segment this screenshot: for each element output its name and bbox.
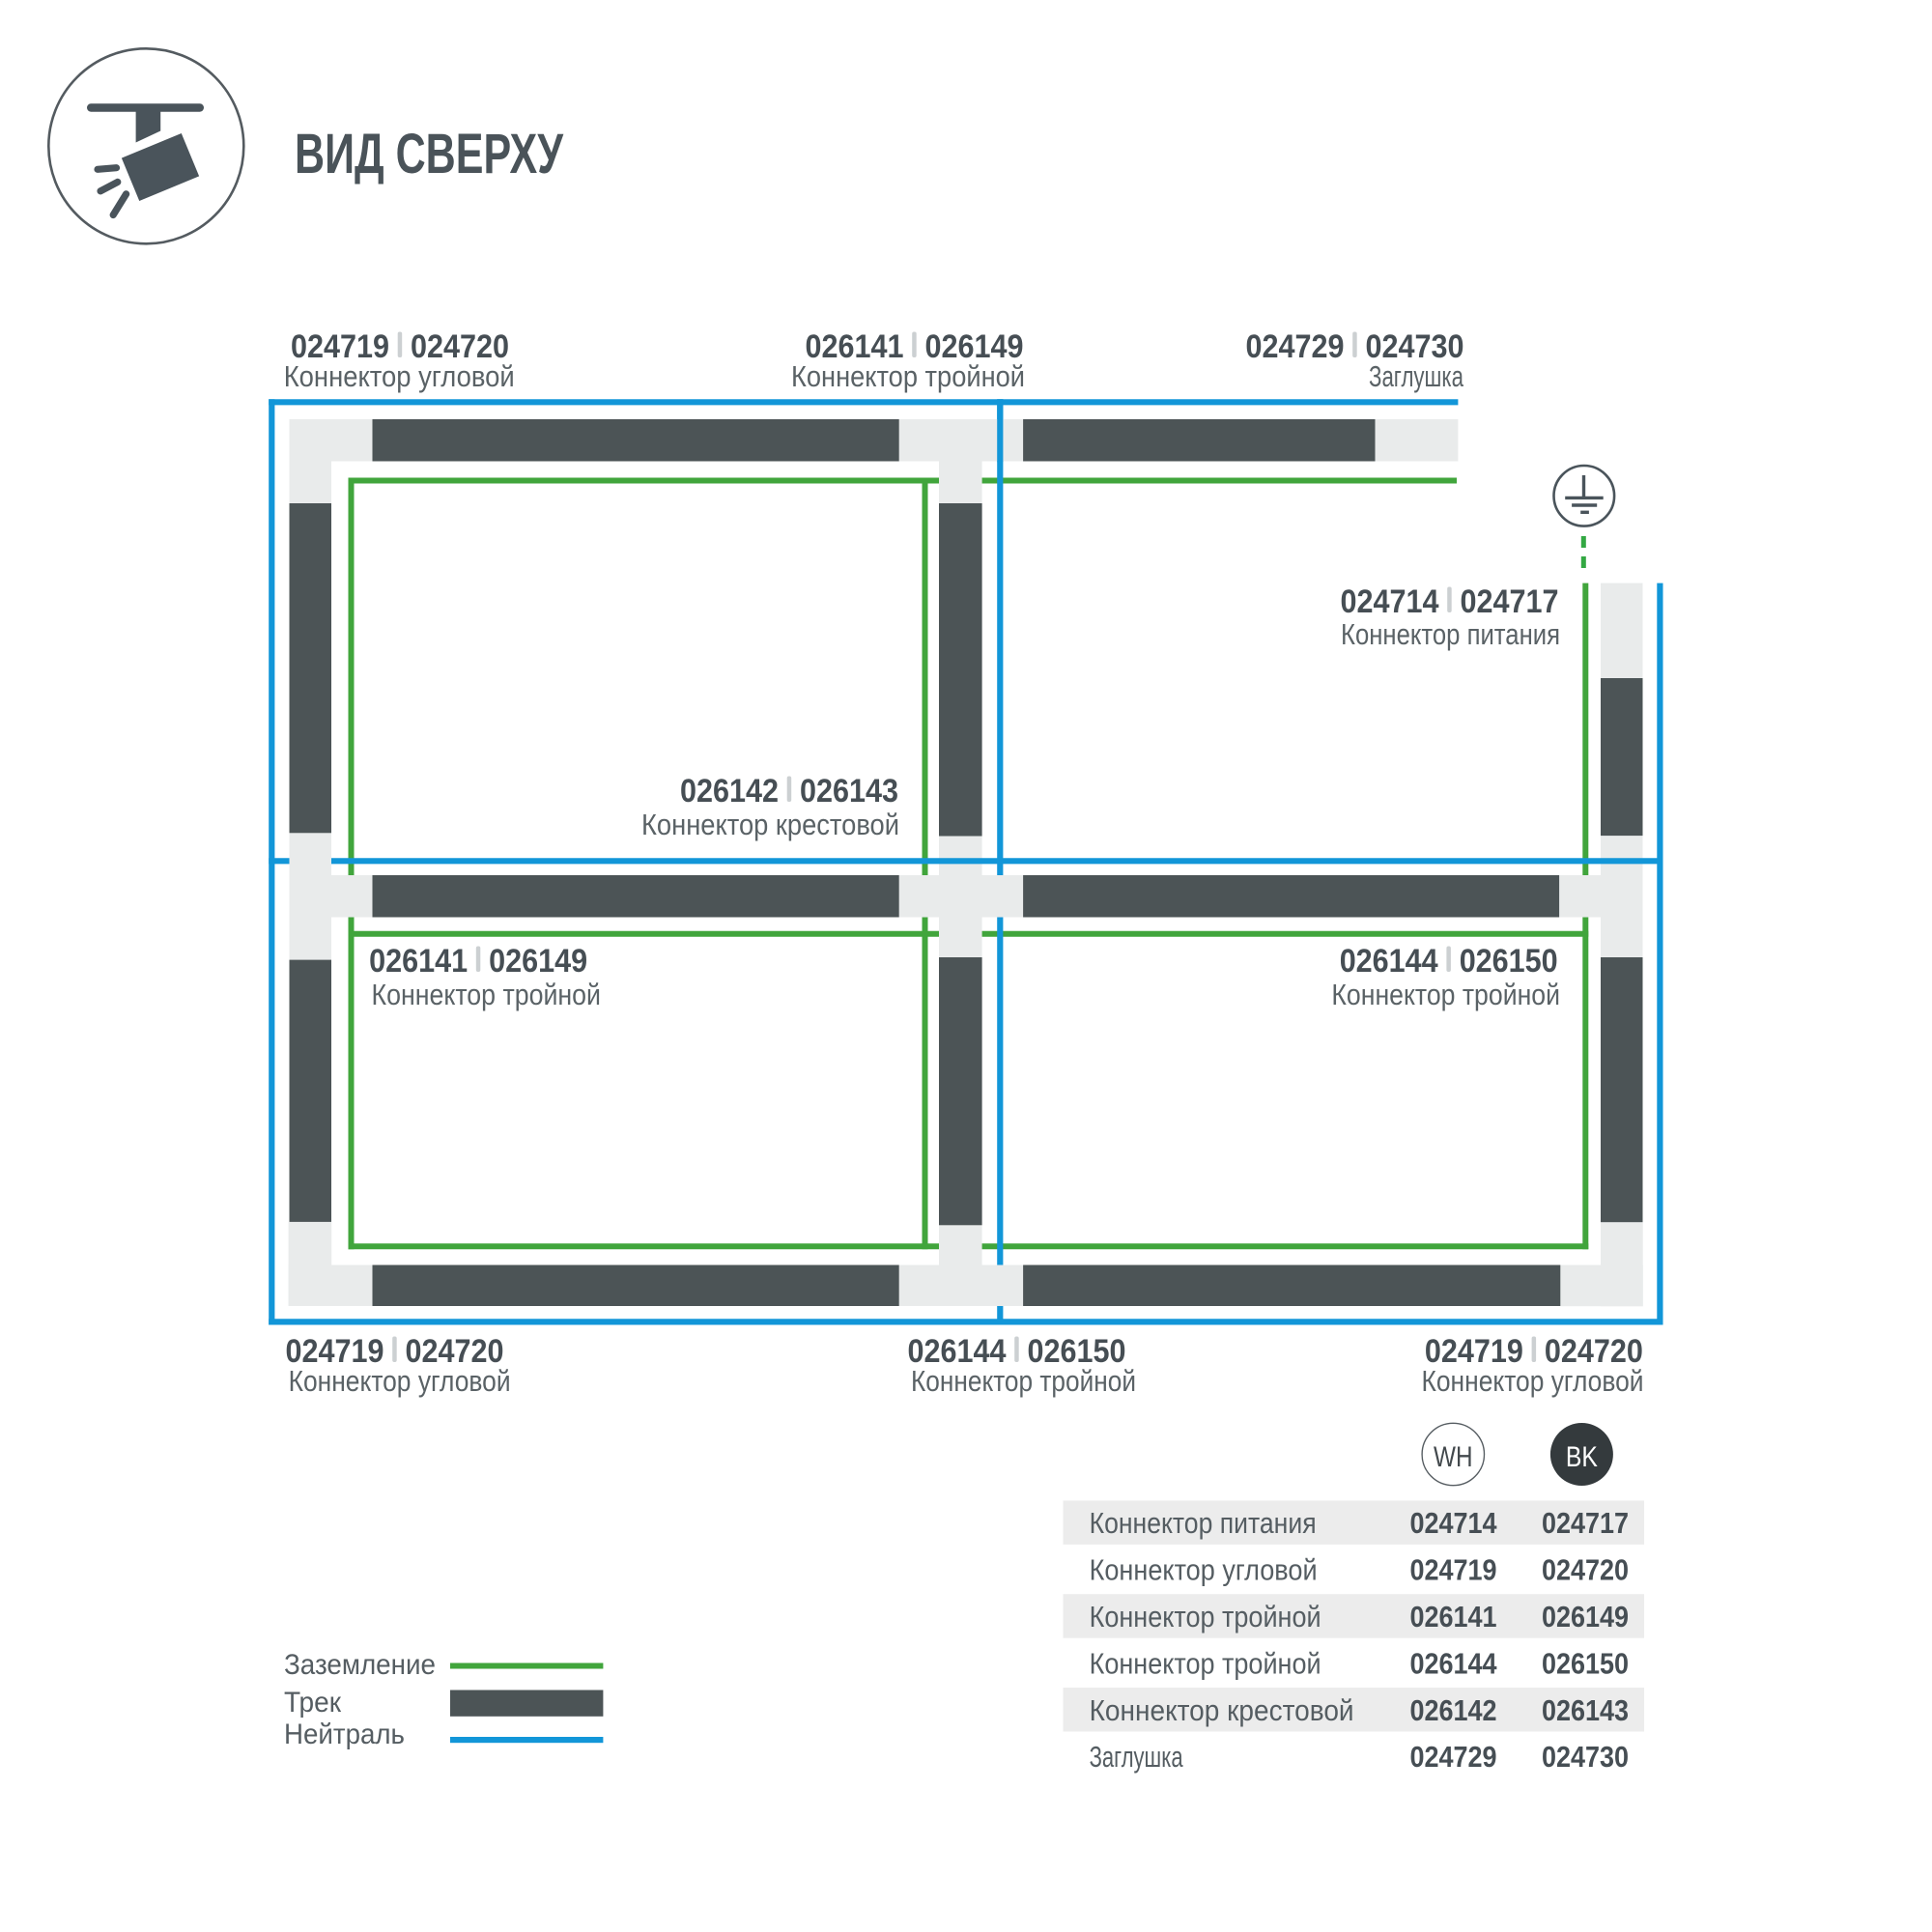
svg-text:Коннектор тройной: Коннектор тройной [372, 978, 602, 1011]
svg-text:Заглушка: Заглушка [1090, 1740, 1184, 1774]
svg-text:026149: 026149 [1542, 1600, 1629, 1634]
svg-text:026141: 026141 [1410, 1600, 1497, 1634]
svg-text:024717: 024717 [1461, 583, 1559, 620]
svg-text:Коннектор тройной: Коннектор тройной [1090, 1600, 1321, 1634]
svg-text:Нейтраль: Нейтраль [284, 1719, 405, 1750]
svg-text:026142: 026142 [680, 773, 779, 810]
svg-text:024714: 024714 [1341, 583, 1439, 620]
svg-text:Коннектор крестовой: Коннектор крестовой [641, 808, 899, 841]
svg-text:024720: 024720 [1542, 1553, 1629, 1587]
svg-text:026150: 026150 [1460, 943, 1558, 980]
svg-text:026143: 026143 [800, 773, 898, 810]
svg-text:026142: 026142 [1410, 1693, 1497, 1727]
svg-text:024714: 024714 [1410, 1506, 1498, 1540]
svg-text:Трек: Трек [284, 1687, 342, 1719]
svg-text:Коннектор угловой: Коннектор угловой [1422, 1364, 1644, 1398]
svg-text:024729: 024729 [1246, 328, 1345, 365]
svg-text:Коннектор угловой: Коннектор угловой [284, 359, 515, 393]
svg-text:026144: 026144 [1340, 943, 1438, 980]
svg-text:026144: 026144 [1410, 1646, 1498, 1680]
svg-text:Коннектор тройной: Коннектор тройной [1331, 978, 1560, 1011]
svg-text:BK: BK [1566, 1441, 1598, 1473]
svg-text:WH: WH [1434, 1441, 1473, 1473]
svg-text:Коннектор тройной: Коннектор тройной [911, 1364, 1136, 1398]
svg-text:ВИД СВЕРХУ: ВИД СВЕРХУ [295, 123, 564, 185]
svg-text:026143: 026143 [1542, 1693, 1629, 1727]
svg-text:Коннектор угловой: Коннектор угловой [289, 1364, 511, 1398]
svg-text:026149: 026149 [489, 943, 587, 980]
svg-text:024730: 024730 [1542, 1740, 1629, 1774]
svg-text:026150: 026150 [1542, 1646, 1629, 1680]
svg-text:Коннектор крестовой: Коннектор крестовой [1090, 1693, 1354, 1727]
svg-text:Заглушка: Заглушка [1369, 359, 1464, 393]
svg-text:Коннектор тройной: Коннектор тройной [1090, 1646, 1321, 1680]
svg-text:024717: 024717 [1542, 1506, 1629, 1540]
svg-text:024719: 024719 [1410, 1553, 1497, 1587]
svg-text:024729: 024729 [1410, 1740, 1497, 1774]
svg-text:Коннектор тройной: Коннектор тройной [791, 359, 1025, 393]
svg-text:Коннектор питания: Коннектор питания [1090, 1506, 1317, 1540]
svg-text:Заземление: Заземление [284, 1649, 436, 1681]
svg-text:026141: 026141 [369, 943, 468, 980]
svg-text:Коннектор питания: Коннектор питания [1341, 617, 1560, 651]
svg-text:Коннектор угловой: Коннектор угловой [1090, 1553, 1318, 1587]
